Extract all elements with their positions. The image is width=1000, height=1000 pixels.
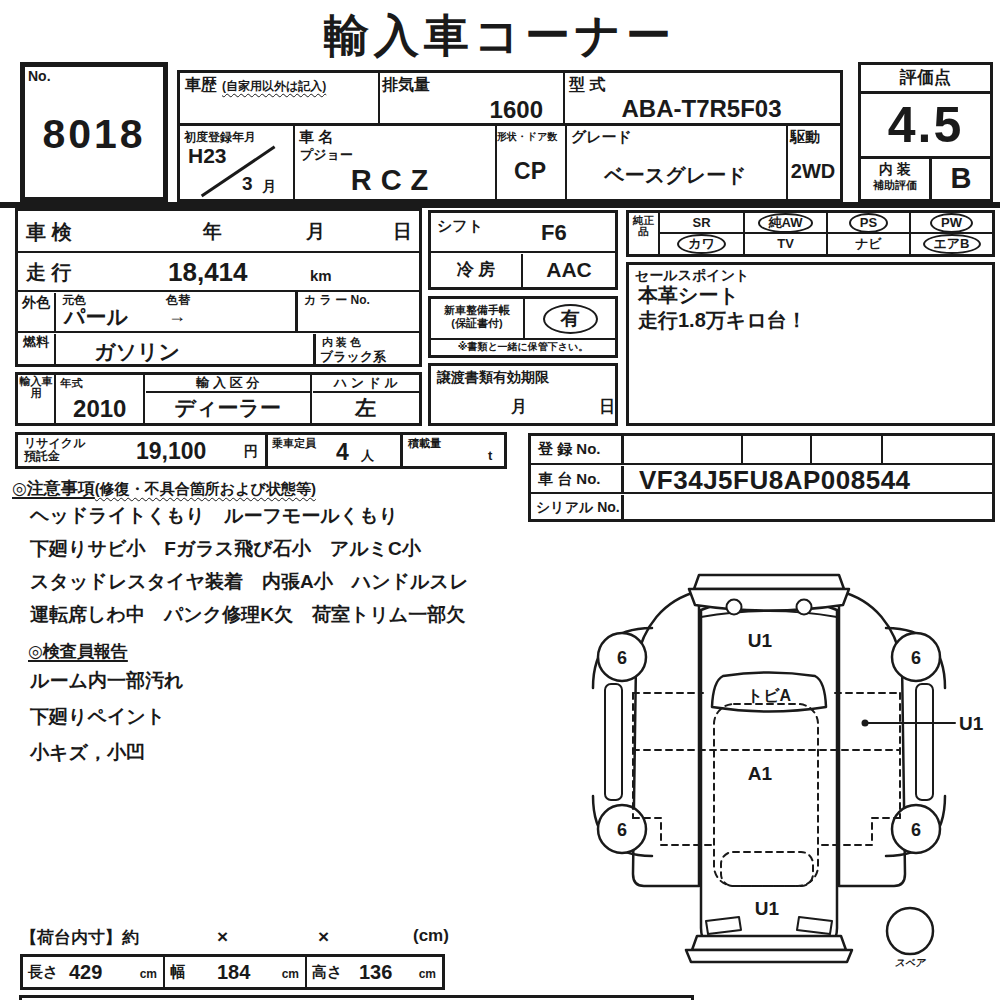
front-bumper-lip: [689, 589, 849, 611]
cargo-height-value: 136: [359, 961, 392, 984]
serial-no-label: シリアル No.: [536, 499, 620, 517]
caution-line: 下廻りサビ小 Fガラス飛び石小 アルミC小: [30, 532, 468, 565]
ac-label: 冷 房: [431, 254, 523, 288]
condition-table: 車 検 年 月 日 走 行 18,414 km 外色 元色 色替 パール → カ…: [15, 208, 422, 367]
cargo-width-label: 幅: [170, 963, 185, 982]
windshield-damage-label: トビA: [747, 687, 792, 704]
inspector-line: ルーム内一部汚れ: [30, 663, 183, 699]
cargo-width-value: 184: [217, 961, 250, 984]
lot-number-box: No. 8018: [20, 62, 168, 202]
model-year-cell: 年式 2010: [57, 375, 146, 423]
shift-box: シフト F6 冷 房 AAC: [428, 210, 618, 290]
cautions-title: ◎注意事項: [12, 479, 95, 498]
model-code-value: ABA-T7R5F03: [563, 95, 840, 123]
inspector-header: ◎検査員報告: [28, 640, 128, 663]
genuine-item: カワ: [660, 234, 743, 255]
mileage-label: 走 行: [26, 259, 72, 286]
model-code-label: 型 式: [569, 75, 605, 96]
mileage-value: 18,414: [168, 257, 248, 288]
sales-point-line: 本革シート: [638, 282, 739, 308]
fuel-label: 燃料: [18, 334, 56, 366]
model-year-label: 年式: [61, 376, 83, 391]
shaken-label: 車 検: [26, 219, 72, 246]
genuine-item: TV: [743, 234, 826, 255]
genuine-item: SR: [660, 213, 743, 234]
car-damage-diagram: U1 トビA A1 U1 U1 6 6 6 6 スペア: [585, 556, 1000, 1000]
body-doors-cell: 形状・ドア数 CP: [495, 126, 567, 203]
tail-light: [797, 917, 832, 934]
recycle-label: リサイクル 預託金: [24, 437, 85, 463]
genuine-item: ナビ: [826, 234, 909, 255]
transfer-day-label: 日: [599, 397, 615, 418]
genuine-item: エアB: [909, 234, 992, 255]
genuine-parts-box: 純正品 SR 純AW PS PW カワ TV ナビ エアB: [626, 210, 995, 257]
seats-value: 4: [336, 439, 349, 466]
mileage-unit: km: [310, 267, 332, 284]
first-registration-cell: 初度登録年月 H23 3 月: [180, 126, 295, 203]
service-book-label: 新車整備手帳 (保証書付): [431, 299, 525, 338]
registration-table: 登 録 No. 車 台 No. VF34J5FU8AP008544 シリアル N…: [528, 433, 995, 522]
auction-sheet: 輸入車コーナー No. 8018 車歴 (自家用以外は記入) 排気量 1600 …: [0, 0, 1000, 1000]
cargo-width-unit: cm: [282, 967, 299, 981]
first-registration-month: 3: [242, 173, 253, 195]
times-sign: ×: [318, 926, 329, 948]
rear-damage-label: U1: [755, 898, 780, 919]
service-book-value: 有: [543, 304, 598, 334]
lot-number-label: No.: [28, 68, 51, 84]
model-year-value: 2010: [57, 395, 144, 423]
import-table: 輸入車用 年式 2010 輸 入 区 分 ディーラー ハ ン ド ル 左: [15, 372, 422, 426]
shaken-day-label: 日: [393, 219, 412, 245]
first-registration-year: H23: [188, 144, 227, 168]
handle-value: 左: [313, 393, 420, 423]
history-label: 車歴: [185, 75, 217, 96]
sales-point-line: 走行1.8万キロ台！: [638, 307, 807, 333]
genuine-item: PS: [826, 213, 909, 234]
displacement-cell: 排気量 1600: [378, 73, 565, 123]
first-registration-month-unit: 月: [262, 178, 276, 196]
handle-label: ハ ン ド ル: [313, 375, 420, 393]
wheel-label: 6: [617, 648, 627, 668]
exterior-color-value: パール: [64, 303, 128, 331]
load-label: 積載量: [408, 436, 441, 451]
service-book-box: 新車整備手帳 (保証書付) 有 ※書類と一緒に保管下さい。: [428, 296, 618, 358]
handle-cell: ハ ン ド ル 左: [313, 375, 420, 423]
cargo-height-unit: cm: [419, 967, 436, 981]
registration-no-label: 登 録 No.: [538, 440, 601, 459]
rating-label: 評価点: [861, 65, 990, 94]
chassis-no-value: VF34J5FU8AP008544: [639, 465, 911, 496]
cargo-height-cell: 高さ 136 cm: [307, 957, 442, 987]
interior-color-value: ブラック系: [320, 348, 386, 366]
wheel-label: 6: [911, 820, 921, 840]
side-damage-label: U1: [959, 713, 984, 734]
shaken-month-label: 月: [306, 219, 325, 245]
cautions-note: (修復・不具合箇所および状態等): [95, 480, 316, 497]
transfer-month-label: 月: [511, 397, 527, 418]
transfer-box: 譲渡書類有効期限 月 日: [428, 363, 618, 426]
history-cell: 車歴 (自家用以外は記入): [180, 73, 380, 123]
transfer-label: 譲渡書類有効期限: [437, 369, 549, 387]
shaken-year-label: 年: [203, 219, 222, 245]
fuel-value: ガソリン: [94, 338, 180, 366]
import-use-label: 輸入車用: [18, 375, 56, 424]
history-note: (自家用以外は記入): [222, 78, 326, 95]
cargo-length-label: 長さ: [28, 963, 58, 982]
seats-label: 乗車定員: [272, 436, 316, 451]
lot-number-value: 8018: [25, 111, 163, 158]
inspector-line: 下廻りペイント: [30, 699, 183, 735]
wheel-label: 6: [911, 648, 921, 668]
vehicle-info-table: 車歴 (自家用以外は記入) 排気量 1600 型 式 ABA-T7R5F03 初…: [177, 70, 843, 202]
times-sign: ×: [217, 926, 228, 948]
cargo-dimensions-table: 長さ 429 cm 幅 184 cm 高さ 136 cm: [20, 954, 445, 990]
model-code-cell: 型 式 ABA-T7R5F03: [563, 73, 840, 123]
displacement-label: 排気量: [382, 75, 430, 96]
sales-points-box: セールスポイント 本革シート 走行1.8万キロ台！: [626, 262, 995, 426]
import-division-value: ディーラー: [146, 393, 311, 423]
drive-value: 2WD: [786, 160, 840, 183]
car-name-cell: 車 名 プジョー RCZ: [293, 126, 497, 203]
wheel-label: 6: [617, 820, 627, 840]
caution-line: スタッドレスタイヤ装着 内張A小 ハンドルスレ: [30, 565, 468, 598]
bottom-clipped-box: [19, 995, 694, 1000]
shift-label: シフト: [437, 217, 483, 236]
rating-score: 4.5: [861, 94, 990, 159]
caution-line: ヘッドライトくもり ルーフモールくもり: [30, 499, 468, 532]
genuine-parts-label: 純正品: [629, 213, 660, 254]
color-no-label: カ ラ ー No.: [304, 292, 370, 309]
genuine-item: 純AW: [743, 213, 826, 234]
cargo-header: 【荷台内寸】約 × × (cm): [20, 926, 460, 950]
cargo-length-value: 429: [69, 961, 102, 984]
color-change-arrow: →: [168, 306, 186, 327]
cargo-height-label: 高さ: [312, 963, 342, 982]
caution-line: 運転席しわ中 パンク修理K欠 荷室トリム一部欠: [30, 598, 468, 631]
rear-bumper: [692, 936, 846, 950]
cautions-list: ヘッドライトくもり ルーフモールくもり 下廻りサビ小 Fガラス飛び石小 アルミC…: [30, 499, 468, 631]
service-book-note: ※書類と一緒に保管下さい。: [431, 340, 615, 354]
grade-label: グレード: [571, 128, 632, 147]
genuine-item: PW: [909, 213, 992, 234]
spare-tire-label: スペア: [895, 957, 927, 968]
rating-box: 評価点 4.5 内 装 補助評価 B: [858, 62, 993, 202]
cargo-length-cell: 長さ 429 cm: [23, 957, 165, 987]
interior-rating-label: 内 装 補助評価: [861, 159, 932, 201]
rear-bumper-lip: [686, 950, 852, 962]
cargo-length-unit: cm: [140, 967, 157, 981]
cargo-unit: (cm): [413, 926, 449, 946]
car-model: RCZ: [293, 164, 495, 197]
hood-damage-label: U1: [748, 630, 773, 651]
inspector-line: 小キズ，小凹: [30, 735, 183, 771]
grade-value: ベースグレード: [565, 162, 786, 189]
car-name-label: 車 名: [299, 128, 333, 147]
import-division-cell: 輸 入 区 分 ディーラー: [146, 375, 313, 423]
ac-value: AAC: [523, 254, 615, 288]
seats-unit: 人: [361, 447, 374, 465]
load-unit: t: [488, 448, 492, 463]
body-doors-value: CP: [495, 158, 565, 185]
cowl-circle: [797, 600, 812, 615]
cabin-damage-label: A1: [748, 763, 773, 784]
grade-cell: グレード ベースグレード: [565, 126, 788, 203]
shift-value: F6: [541, 220, 567, 246]
inspector-list: ルーム内一部汚れ 下廻りペイント 小キズ，小凹: [30, 663, 183, 771]
displacement-value: 1600: [378, 96, 543, 124]
recycle-value: 19,100: [136, 438, 206, 465]
chassis-no-label: 車 台 No.: [538, 470, 601, 489]
left-sill: [605, 684, 622, 800]
cautions-header: ◎注意事項(修復・不具合箇所および状態等): [12, 477, 316, 500]
spare-tire: [887, 908, 933, 954]
car-brand: プジョー: [300, 146, 353, 164]
body-doors-label: 形状・ドア数: [497, 130, 557, 144]
interior-rating-value: B: [932, 159, 990, 201]
front-bumper: [694, 575, 844, 589]
recycle-unit: 円: [244, 443, 258, 461]
import-division-label: 輸 入 区 分: [146, 375, 311, 393]
right-sill: [916, 684, 933, 800]
cowl-circle: [727, 600, 742, 615]
exterior-color-label: 外色: [18, 293, 56, 333]
tail-light: [706, 917, 741, 934]
cargo-width-cell: 幅 184 cm: [165, 957, 307, 987]
page-title: 輸入車コーナー: [0, 6, 1000, 66]
recycle-table: リサイクル 預託金 19,100 円 乗車定員 4 人 積載量 t: [15, 432, 507, 469]
drive-label: 駆動: [790, 128, 820, 147]
drive-cell: 駆動 2WD: [786, 126, 840, 203]
